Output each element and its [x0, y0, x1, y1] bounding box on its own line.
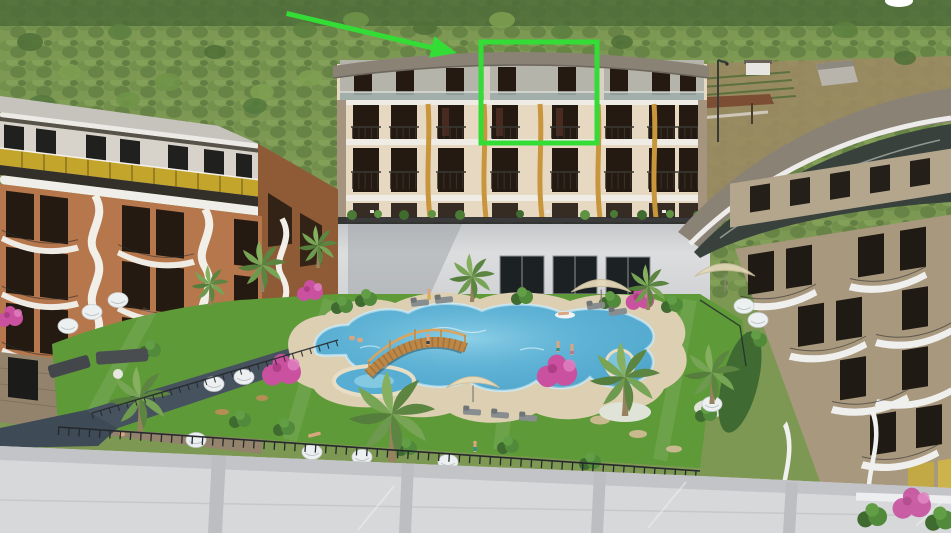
slab-3 — [337, 195, 707, 201]
slab-1 — [337, 100, 707, 105]
stone-end-left — [337, 100, 346, 222]
render-image — [0, 0, 951, 533]
central-building — [333, 52, 710, 308]
hill-treeline — [0, 0, 951, 26]
retaining-wall — [0, 446, 951, 533]
top-floor-glass-balustrade — [340, 92, 704, 101]
